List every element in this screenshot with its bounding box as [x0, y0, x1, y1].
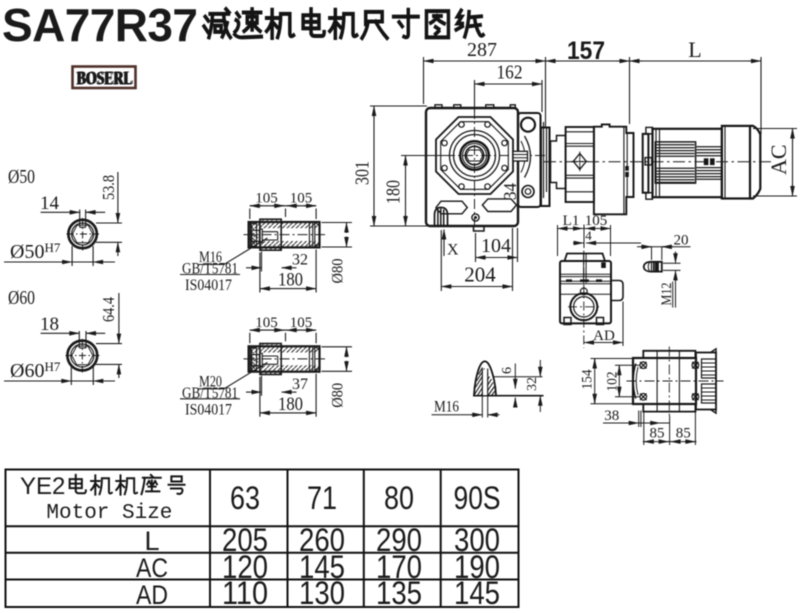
svg-text:14: 14: [40, 193, 60, 214]
svg-text:IS04017: IS04017: [185, 277, 232, 294]
svg-text:L: L: [688, 37, 701, 62]
svg-text:AC: AC: [766, 144, 791, 175]
svg-text:204: 204: [464, 263, 496, 287]
svg-text:Ø80: Ø80: [330, 383, 347, 408]
svg-text:162: 162: [497, 62, 523, 84]
svg-text:154: 154: [580, 369, 596, 389]
svg-text:AC: AC: [136, 553, 168, 583]
svg-text:37: 37: [292, 376, 308, 393]
svg-text:110: 110: [222, 575, 268, 611]
svg-text:180: 180: [383, 180, 405, 204]
svg-text:71: 71: [307, 480, 337, 516]
svg-text:YE2: YE2: [20, 473, 65, 500]
svg-text:80: 80: [384, 480, 414, 516]
svg-text:104: 104: [481, 235, 511, 257]
svg-text:Ø50: Ø50: [8, 166, 35, 188]
svg-text:L1: L1: [563, 213, 580, 229]
svg-text:287: 287: [467, 39, 497, 61]
svg-text:AD: AD: [136, 580, 168, 610]
svg-text:102: 102: [605, 372, 621, 392]
svg-text:301: 301: [352, 161, 374, 185]
svg-text:145: 145: [454, 575, 500, 611]
svg-text:105: 105: [255, 315, 278, 331]
svg-text:IS04017: IS04017: [185, 401, 232, 418]
svg-text:180: 180: [278, 394, 303, 415]
svg-text:32: 32: [525, 377, 540, 391]
svg-text:85: 85: [676, 426, 691, 442]
svg-text:34: 34: [500, 183, 520, 200]
svg-text:105: 105: [585, 213, 608, 229]
svg-text:6: 6: [500, 367, 515, 374]
svg-text:90S: 90S: [454, 480, 501, 516]
svg-text:105: 105: [290, 315, 313, 331]
svg-text:Ø80: Ø80: [330, 259, 347, 284]
svg-text:4: 4: [585, 228, 592, 243]
svg-text:Motor Size: Motor Size: [46, 502, 172, 525]
svg-text:M16: M16: [434, 399, 459, 416]
svg-text:53.8: 53.8: [99, 175, 118, 200]
svg-text:135: 135: [376, 575, 422, 611]
svg-text:63: 63: [230, 480, 260, 516]
svg-text:85: 85: [650, 426, 665, 442]
svg-text:L: L: [144, 526, 159, 556]
svg-text:105: 105: [290, 191, 313, 207]
svg-text:Ø60H7: Ø60H7: [10, 359, 61, 382]
svg-text:Ø50H7: Ø50H7: [10, 240, 61, 263]
svg-text:BOSERL: BOSERL: [77, 68, 133, 89]
svg-text:18: 18: [40, 314, 59, 335]
svg-text:130: 130: [299, 575, 345, 611]
svg-text:180: 180: [278, 270, 303, 291]
svg-text:Ø60: Ø60: [8, 287, 35, 309]
svg-text:X: X: [447, 242, 459, 259]
svg-text:AD: AD: [593, 328, 615, 344]
svg-text:38: 38: [604, 408, 619, 424]
svg-text:32: 32: [292, 252, 308, 269]
svg-text:105: 105: [255, 191, 278, 207]
svg-text:20: 20: [674, 233, 689, 249]
svg-text:SA77R37: SA77R37: [2, 0, 198, 51]
svg-text:64.4: 64.4: [99, 297, 118, 322]
